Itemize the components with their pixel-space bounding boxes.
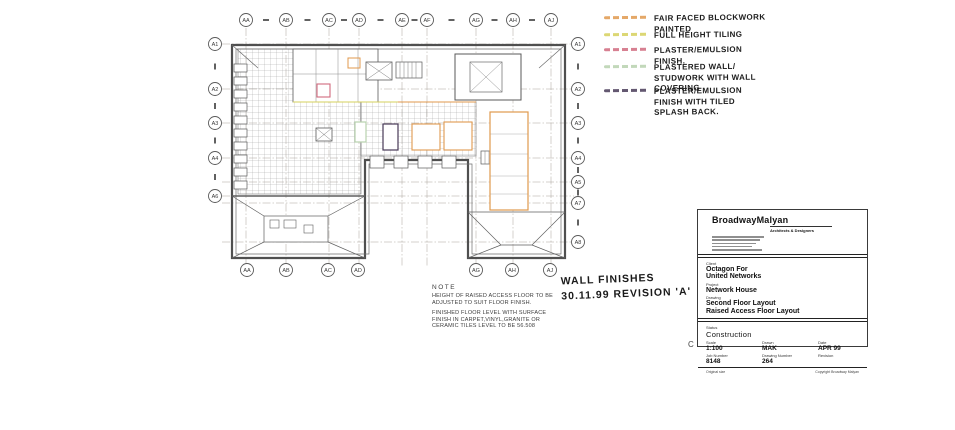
divider <box>698 367 867 368</box>
legend-label: PLASTER/EMULSION FINISH WITH TILED SPLAS… <box>654 85 799 118</box>
grid-bubble: A2 <box>572 83 585 96</box>
grid-bubble: AB <box>280 14 293 27</box>
svg-text:AE: AE <box>398 18 406 24</box>
grid-bubble: A4 <box>209 152 222 165</box>
note-block: NOTE HEIGHT OF RAISED ACCESS FLOOR TO BE… <box>432 284 564 334</box>
drawing-line1: Second Floor Layout <box>706 300 859 308</box>
svg-text:A3: A3 <box>575 121 582 127</box>
lift-icon <box>366 62 392 80</box>
svg-text:AH: AH <box>508 268 516 274</box>
wall-bay <box>234 77 247 85</box>
grid-bubble: AA <box>241 264 254 277</box>
lift-icon <box>316 128 332 141</box>
finish-swatch-icon <box>604 48 648 51</box>
title-block: BroadwayMalyan Architects & Designers Cl… <box>697 209 868 347</box>
scale-value: 1:100 <box>706 345 762 352</box>
grid-bubble: AA <box>240 14 253 27</box>
wall-bay <box>234 155 247 163</box>
svg-text:AJ: AJ <box>548 18 555 24</box>
status-value: Construction <box>706 330 859 339</box>
note-title: NOTE <box>432 284 564 291</box>
wall-bay <box>234 103 247 111</box>
drawing-title: Second Floor Layout Raised Access Floor … <box>706 300 859 315</box>
date-value: APR 99 <box>818 345 841 352</box>
svg-text:A4: A4 <box>575 156 582 162</box>
client-line2: United Networks <box>706 273 859 281</box>
drawing-sheet: AAABACADAEAFAGAHAJAAABACADAGAHAJA1A2A3A4… <box>0 0 955 430</box>
bay-notch <box>370 156 384 168</box>
svg-text:A4: A4 <box>212 156 219 162</box>
bay-notch <box>442 156 456 168</box>
client-line1: Octagon For <box>706 266 859 274</box>
grid-bubble: AJ <box>545 14 558 27</box>
svg-text:A2: A2 <box>212 87 219 93</box>
grid-bubble: AE <box>396 14 409 27</box>
wall-bay <box>234 129 247 137</box>
copyright-label: Copyright Broadway Malyan <box>815 370 859 374</box>
sheet-corner-mark: C <box>688 340 694 349</box>
grid-bubble: AG <box>470 264 483 277</box>
svg-text:A5: A5 <box>575 180 582 186</box>
svg-text:A8: A8 <box>575 240 582 246</box>
grid-bubble: A7 <box>572 197 585 210</box>
finish-swatch-icon <box>604 65 648 68</box>
grid-bubble: AG <box>470 14 483 27</box>
wall-bay <box>234 142 247 150</box>
grid-bubble: A1 <box>209 38 222 51</box>
firm-address <box>712 236 859 251</box>
finish-swatch-icon <box>604 89 648 92</box>
client-name: Octagon For United Networks <box>706 266 859 281</box>
svg-text:AD: AD <box>354 268 362 274</box>
address-line <box>712 243 756 245</box>
svg-text:AH: AH <box>509 18 517 24</box>
svg-text:AA: AA <box>242 18 250 24</box>
original-size-label: Original size <box>706 370 725 374</box>
address-line <box>712 246 752 248</box>
grid-bubble: A8 <box>572 236 585 249</box>
bay-notch <box>394 156 408 168</box>
drawing-line2: Raised Access Floor Layout <box>706 308 859 316</box>
divider <box>698 254 867 258</box>
wall-bay <box>234 168 247 176</box>
grid-bubble: A5 <box>572 176 585 189</box>
svg-text:A3: A3 <box>212 121 219 127</box>
grid-bubble: A4 <box>572 152 585 165</box>
floor-plan: AAABACADAEAFAGAHAJAAABACADAGAHAJA1A2A3A4… <box>198 4 598 310</box>
note-paragraph: FINISHED FLOOR LEVEL WITH SURFACE FINISH… <box>432 310 564 330</box>
drawn-value: MAK <box>762 345 818 352</box>
grid-bubble: A1 <box>572 38 585 51</box>
finish-swatch-icon <box>604 33 648 36</box>
grid-bubble: A6 <box>209 190 222 203</box>
grid-bubble: A3 <box>209 117 222 130</box>
svg-text:A1: A1 <box>212 42 219 48</box>
roof-block-right <box>468 212 565 258</box>
grid-bubble: A2 <box>209 83 222 96</box>
svg-text:AF: AF <box>423 18 431 24</box>
grid-bubble: AH <box>507 14 520 27</box>
svg-text:A2: A2 <box>575 87 582 93</box>
svg-text:A6: A6 <box>212 194 219 200</box>
svg-text:AB: AB <box>282 18 290 24</box>
svg-text:AC: AC <box>325 18 333 24</box>
wall-bay <box>234 64 247 72</box>
wall-bay <box>234 181 247 189</box>
firm-logo: BroadwayMalyan <box>712 215 859 225</box>
titleblock-footer: Original size Copyright Broadway Malyan <box>706 370 859 374</box>
address-line <box>712 249 762 251</box>
divider <box>698 318 867 322</box>
grid-bubble: AB <box>280 264 293 277</box>
grid-bubble: AH <box>506 264 519 277</box>
wall-bay <box>234 90 247 98</box>
svg-text:AG: AG <box>472 18 480 24</box>
svg-text:AJ: AJ <box>547 268 554 274</box>
grid-bubble: AD <box>352 264 365 277</box>
stair-icon <box>396 62 422 78</box>
address-line <box>712 239 760 241</box>
number-row: Job Number 8148 Drawing Number 264 Revis… <box>706 352 859 365</box>
svg-text:AG: AG <box>472 268 480 274</box>
bay-notch <box>418 156 432 168</box>
grid-bubble: AF <box>421 14 434 27</box>
svg-text:AD: AD <box>355 18 363 24</box>
svg-text:AC: AC <box>324 268 332 274</box>
address-line <box>712 236 764 238</box>
svg-text:A7: A7 <box>575 201 582 207</box>
grid-bubble: A3 <box>572 117 585 130</box>
note-paragraph: HEIGHT OF RAISED ACCESS FLOOR TO BE ADJU… <box>432 293 564 306</box>
job-number-value: 8148 <box>706 358 762 365</box>
grid-bubble: AC <box>322 264 335 277</box>
wall-bay <box>234 116 247 124</box>
revision-label: Revision <box>818 353 833 358</box>
firm-subtitle: Architects & Designers <box>770 226 832 233</box>
project-name: Network House <box>706 287 859 295</box>
grid-bubble: AC <box>323 14 336 27</box>
svg-text:AB: AB <box>282 268 290 274</box>
drawing-number-value: 264 <box>762 358 818 365</box>
handwritten-annotation: WALL FINISHES 30.11.99 REVISION 'A' <box>560 270 691 305</box>
svg-text:A1: A1 <box>575 42 582 48</box>
svg-text:AA: AA <box>243 268 251 274</box>
roof-block-left <box>232 196 365 258</box>
legend-label: FULL HEIGHT TILING <box>654 29 799 41</box>
scale-row: Scale 1:100 Drawn MAK Date APR 99 <box>706 339 859 352</box>
grid-bubble: AD <box>353 14 366 27</box>
finish-swatch-icon <box>604 16 648 19</box>
grid-bubble: AJ <box>544 264 557 277</box>
